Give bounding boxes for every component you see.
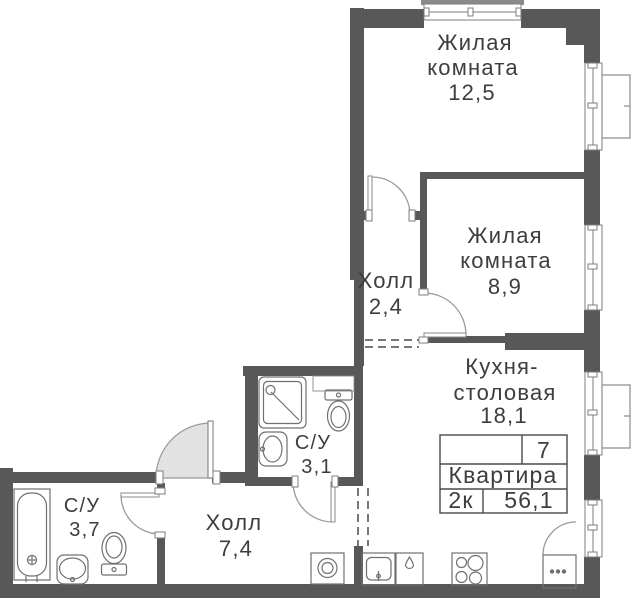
toilet-icon-wc1 <box>325 390 352 431</box>
living1-area: 12,5 <box>448 80 496 105</box>
bathroom-large-area: 3,7 <box>69 519 100 541</box>
window-kitchen <box>585 372 602 455</box>
window-living2 <box>585 225 602 310</box>
sink-icon-wc1 <box>259 432 287 466</box>
living2-name-line1: Жилая <box>467 223 543 248</box>
stamp-title: Квартира <box>448 462 557 488</box>
floor-plan-drawing: Жилая комната 12,5 Жилая комната 8,9 Хол… <box>0 0 632 600</box>
living2-area: 8,9 <box>488 274 522 299</box>
washing-machine-icon <box>311 553 344 584</box>
fridge-icon <box>543 555 576 588</box>
balcony-kitchen <box>602 385 630 448</box>
balcony-top <box>602 75 630 138</box>
zone-boundary-dashed <box>358 340 419 546</box>
hall-small-area: 2,4 <box>369 294 403 319</box>
entrance-door <box>156 421 213 478</box>
stamp-total-area: 56,1 <box>504 487 554 513</box>
stamp-rooms-count: 2к <box>448 487 473 513</box>
stamp-floor-number: 7 <box>537 437 551 463</box>
hall-main-area: 7,4 <box>219 536 253 561</box>
bathroom-large-name: С/У <box>64 495 100 517</box>
hall-small-name: Холл <box>358 268 415 293</box>
kitchen-name-line1: Кухня- <box>465 354 538 379</box>
living1-name-line1: Жилая <box>437 30 513 55</box>
window-living1 <box>585 63 602 150</box>
vent-duct <box>313 376 354 391</box>
dishwasher-icon <box>396 553 423 585</box>
kitchen-sink-icon <box>362 553 395 585</box>
window-kitchen-small <box>585 500 602 557</box>
bathroom-small-name: С/У <box>295 432 331 454</box>
stove-icon <box>452 553 487 585</box>
floor-plan: Жилая комната 12,5 Жилая комната 8,9 Хол… <box>0 0 632 600</box>
toilet-icon-wc2 <box>102 533 127 576</box>
shower-icon <box>259 377 306 428</box>
kitchen-name-line2: столовая <box>453 380 556 405</box>
bathtub-icon <box>14 489 50 582</box>
window-top <box>424 4 521 20</box>
living2-name-line2: комната <box>460 248 552 273</box>
hall-main-name: Холл <box>206 510 263 535</box>
living1-name-line2: комната <box>427 55 519 80</box>
kitchen-area: 18,1 <box>480 403 528 428</box>
sink-icon-wc2 <box>57 555 88 584</box>
bathroom-small-area: 3,1 <box>301 456 332 478</box>
